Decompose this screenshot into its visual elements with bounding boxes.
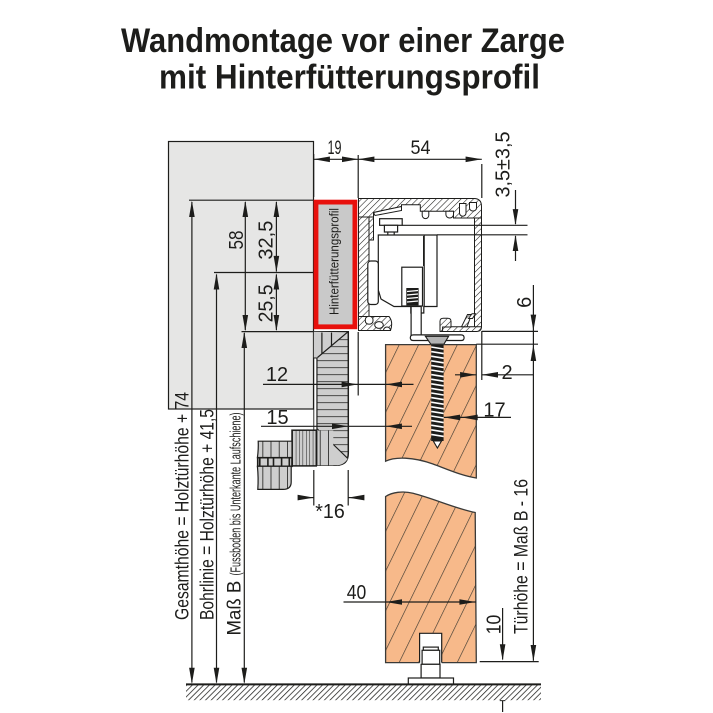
svg-text:32,5: 32,5 xyxy=(256,221,278,260)
svg-text:Türhöhe = Maß B - 16: Türhöhe = Maß B - 16 xyxy=(511,479,532,634)
svg-text:17: 17 xyxy=(483,400,505,422)
svg-text:3,5±3,5: 3,5±3,5 xyxy=(493,132,515,198)
svg-text:Maß B (Fussboden bis Unterkant: Maß B (Fussboden bis Unterkante Laufschi… xyxy=(225,413,246,636)
svg-text:6: 6 xyxy=(514,297,536,308)
svg-text:Gesamthöhe = Holztürhöhe + 74: Gesamthöhe = Holztürhöhe + 74 xyxy=(173,392,194,620)
svg-text:10: 10 xyxy=(484,615,506,635)
svg-text:2: 2 xyxy=(501,362,512,384)
svg-text:15: 15 xyxy=(266,407,288,429)
svg-text:Bohrlinie = Holztürhöhe + 41,5: Bohrlinie = Holztürhöhe + 41,5 xyxy=(198,409,219,620)
svg-text:mit Hinterfütterungsprofil: mit Hinterfütterungsprofil xyxy=(159,59,540,97)
svg-text:40: 40 xyxy=(347,582,367,604)
svg-text:*16: *16 xyxy=(315,501,345,523)
svg-text:25,5: 25,5 xyxy=(256,284,278,322)
svg-text:54: 54 xyxy=(411,138,431,159)
svg-text:19: 19 xyxy=(328,138,342,159)
svg-text:12: 12 xyxy=(266,364,288,386)
svg-text:Wandmontage vor einer Zarge: Wandmontage vor einer Zarge xyxy=(121,22,565,60)
svg-text:58: 58 xyxy=(226,231,248,250)
svg-text:Hinterfütterungsprofil: Hinterfütterungsprofil xyxy=(327,208,342,315)
